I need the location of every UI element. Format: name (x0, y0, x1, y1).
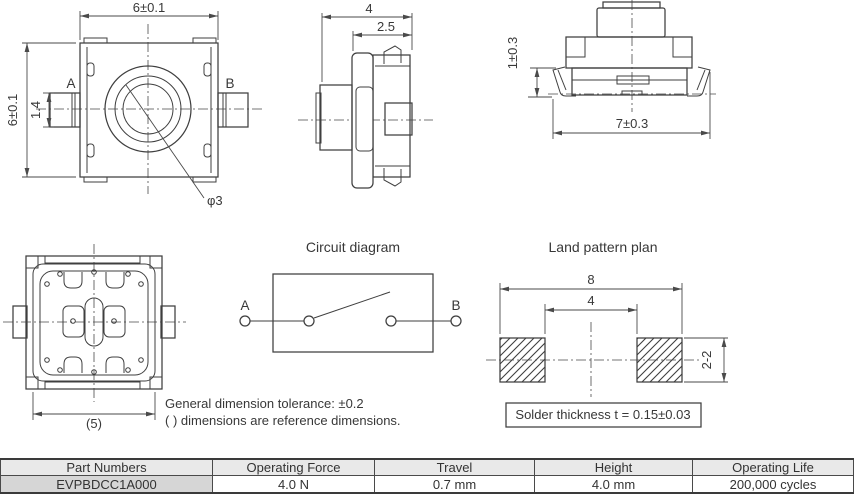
spec-table-header-row: Part Numbers Operating Force Travel Heig… (0, 460, 854, 476)
note-tolerance: General dimension tolerance: ±0.2 (165, 396, 364, 411)
general-notes: General dimension tolerance: ±0.2 ( ) di… (165, 396, 401, 428)
solder-pad-right (637, 338, 682, 382)
top-view: 6±0.1 6±0.1 1.4 A B φ3 (5, 0, 262, 208)
dim-ref-width: (5) (86, 416, 102, 431)
dim-pad-size: 2-2 (699, 351, 714, 370)
circuit-title: Circuit diagram (306, 239, 400, 255)
dim-left-height: 6±0.1 (5, 94, 20, 126)
dim-side-width: 4 (365, 1, 372, 16)
terminal-b-label: B (225, 76, 234, 91)
land-pattern-plan: Land pattern plan 8 4 2-2 Solder thickne… (486, 239, 728, 427)
note-reference: ( ) dimensions are reference dimensions. (165, 413, 401, 428)
header-operating-life: Operating Life (693, 460, 854, 476)
circuit-diagram: Circuit diagram A B (240, 239, 461, 352)
front-view: 1±0.3 7±0.3 (505, 0, 716, 139)
dim-side-step: 2.5 (377, 19, 395, 34)
dim-button-diameter: φ3 (207, 193, 223, 208)
switch-lever (314, 292, 390, 318)
side-view: 4 2.5 (298, 1, 433, 188)
bottom-view: (5) (3, 244, 186, 431)
switch-contact-left (304, 316, 314, 326)
dim-pad-inner: 4 (587, 293, 594, 308)
cell-travel: 0.7 mm (375, 476, 535, 492)
technical-drawing: 6±0.1 6±0.1 1.4 A B φ3 4 2.5 (0, 0, 854, 458)
header-operating-force: Operating Force (213, 460, 375, 476)
circuit-terminal-b (451, 316, 461, 326)
dim-lead-height: 1±0.3 (505, 37, 520, 69)
dim-pad-outer: 8 (587, 272, 594, 287)
solder-note: Solder thickness t = 0.15±0.03 (515, 407, 690, 422)
header-height: Height (535, 460, 693, 476)
cell-height: 4.0 mm (535, 476, 693, 492)
dim-tab: 1.4 (28, 101, 43, 119)
header-travel: Travel (375, 460, 535, 476)
dim-top-width: 6±0.1 (133, 0, 165, 15)
dim-lead-span: 7±0.3 (616, 116, 648, 131)
datasheet-page: 6±0.1 6±0.1 1.4 A B φ3 4 2.5 (0, 0, 854, 494)
header-part-numbers: Part Numbers (0, 460, 213, 476)
spec-table-data-row: EVPBDCC1A000 4.0 N 0.7 mm 4.0 mm 200,000… (0, 476, 854, 492)
spec-table: Part Numbers Operating Force Travel Heig… (0, 458, 854, 494)
circuit-terminal-a-label: A (240, 298, 249, 313)
switch-contact-right (386, 316, 396, 326)
circuit-terminal-a (240, 316, 250, 326)
circuit-terminal-b-label: B (451, 298, 460, 313)
terminal-a-label: A (66, 76, 75, 91)
solder-pad-left (500, 338, 545, 382)
cell-part-number: EVPBDCC1A000 (0, 476, 213, 492)
cell-operating-life: 200,000 cycles (693, 476, 854, 492)
cell-operating-force: 4.0 N (213, 476, 375, 492)
land-pattern-title: Land pattern plan (549, 239, 658, 255)
